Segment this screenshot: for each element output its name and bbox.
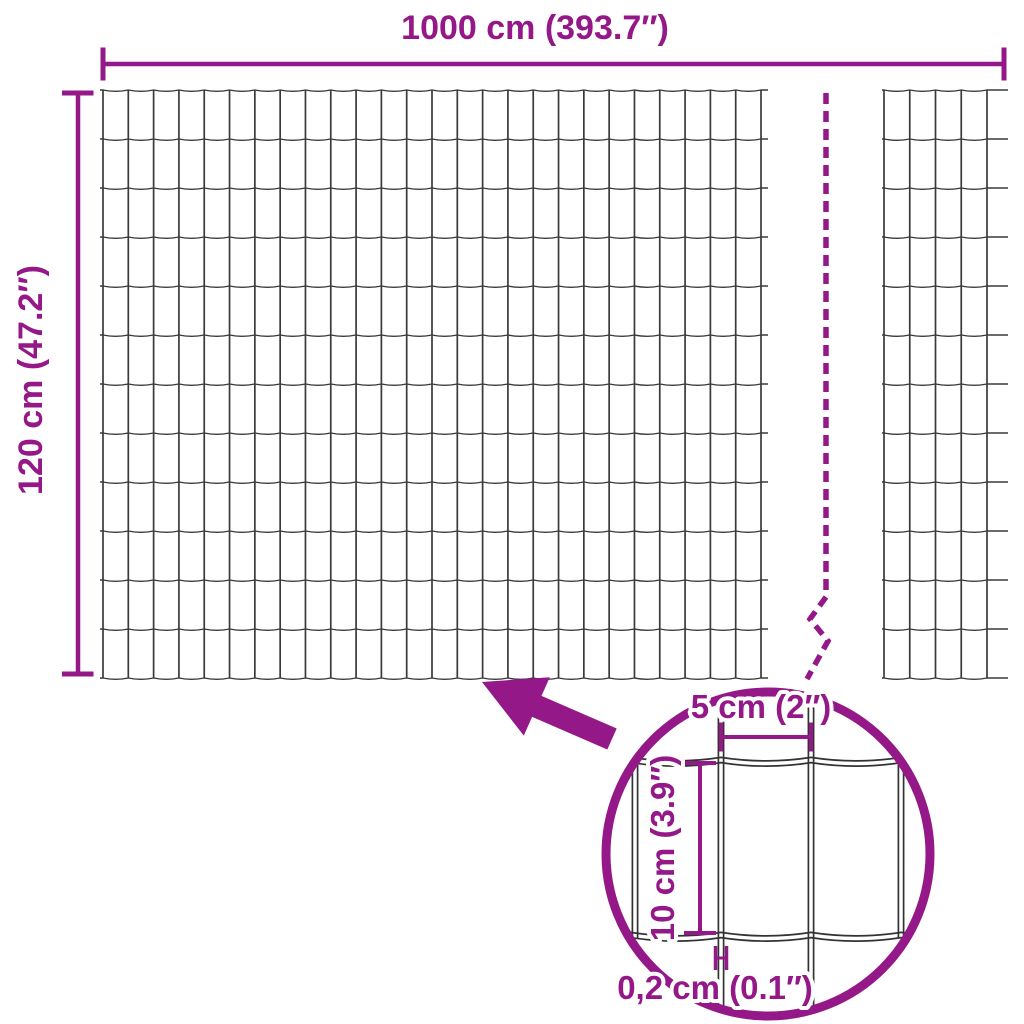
mesh-horizontal-wire <box>882 384 1008 385</box>
mesh-horizontal-wire <box>882 580 1008 581</box>
mesh-width-label: 5 cm (2″) <box>691 688 832 725</box>
mesh-horizontal-wire <box>882 139 1008 140</box>
break-dashed-line-icon <box>807 93 828 679</box>
mesh-horizontal-wire <box>882 90 1008 91</box>
mesh-horizontal-wire <box>882 237 1008 238</box>
fence-mesh-panel-main <box>100 90 768 679</box>
fence-mesh-panel-right <box>882 90 1008 679</box>
wire-thickness-label: 0,2 cm (0.1″) <box>617 969 813 1006</box>
mesh-horizontal-wire <box>882 629 1008 630</box>
mesh-horizontal-wire <box>882 433 1008 434</box>
mesh-horizontal-wire <box>100 531 768 532</box>
total-height-label: 120 cm (47.2″) <box>12 265 50 495</box>
mesh-horizontal-wire <box>100 139 768 140</box>
mesh-horizontal-wire <box>100 237 768 238</box>
height-dimension: 120 cm (47.2″) <box>12 93 94 674</box>
mesh-horizontal-wire <box>100 384 768 385</box>
mesh-height-label: 10 cm (3.9″) <box>644 755 681 941</box>
width-dimension: 1000 cm (393.7″) <box>103 9 1004 81</box>
mesh-horizontal-wire <box>882 482 1008 483</box>
mesh-horizontal-wire <box>100 433 768 434</box>
mesh-horizontal-wire <box>100 580 768 581</box>
zoom-arrow-icon <box>482 677 617 749</box>
mesh-horizontal-wire <box>882 286 1008 287</box>
mesh-horizontal-wire <box>882 188 1008 189</box>
product-dimension-diagram: 1000 cm (393.7″) 120 cm (47.2″) <box>0 0 1024 1024</box>
mesh-horizontal-wire <box>100 188 768 189</box>
mesh-horizontal-wire <box>882 531 1008 532</box>
mesh-horizontal-wire <box>100 678 768 679</box>
diagram-svg: 1000 cm (393.7″) 120 cm (47.2″) <box>0 0 1024 1024</box>
mesh-horizontal-wire <box>100 286 768 287</box>
mesh-horizontal-wire <box>100 482 768 483</box>
total-width-label: 1000 cm (393.7″) <box>401 9 669 47</box>
mesh-horizontal-wire <box>100 335 768 336</box>
mesh-horizontal-wire <box>100 90 768 91</box>
mesh-horizontal-wire <box>882 678 1008 679</box>
mesh-horizontal-wire <box>882 335 1008 336</box>
mesh-horizontal-wire <box>100 629 768 630</box>
